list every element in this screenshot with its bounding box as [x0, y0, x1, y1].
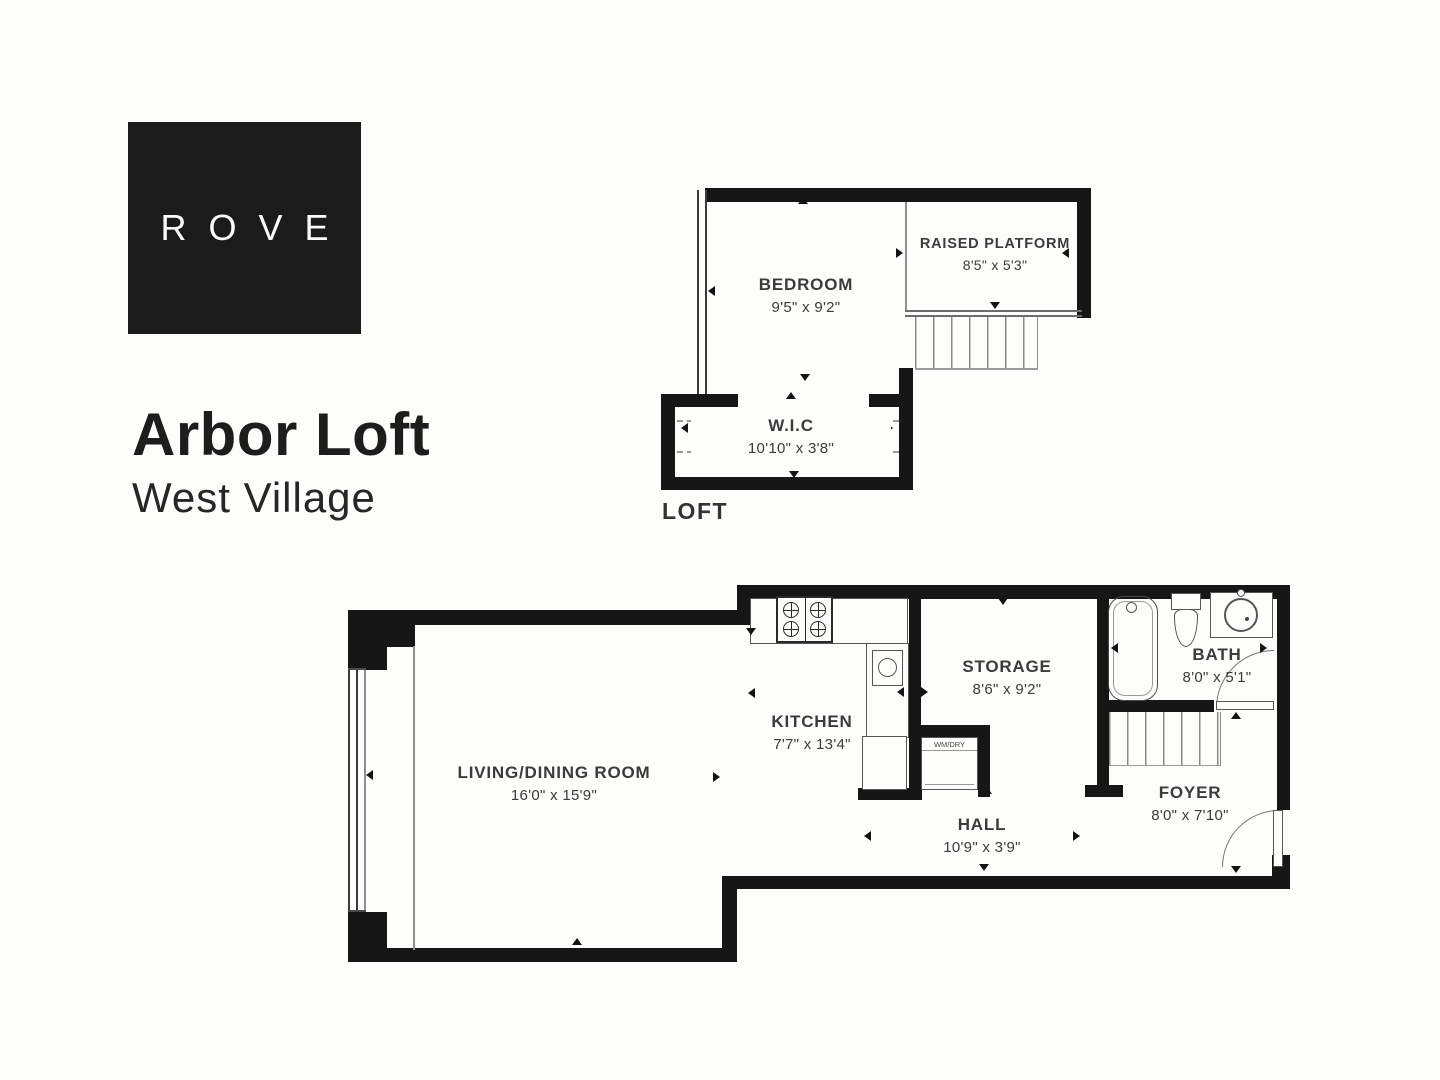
- room-dims: 8'0" x 5'1": [1127, 669, 1307, 686]
- room-label-living-dining: LIVING/DINING ROOM 16'0" x 15'9": [454, 763, 654, 804]
- rove-logo: ROVE: [128, 122, 361, 334]
- room-label-bath: BATH 8'0" x 5'1": [1127, 645, 1307, 686]
- stove: [776, 596, 833, 643]
- wall-segment: [899, 368, 913, 490]
- room-name: W.I.C: [691, 416, 891, 436]
- room-dims: 9'5" x 9'2": [716, 299, 896, 316]
- stove-burner: [810, 602, 826, 618]
- washer-door-line: [925, 784, 974, 785]
- wall-segment: [661, 477, 913, 490]
- direction-marker: [366, 770, 373, 780]
- room-dims: 10'9" x 3'9": [892, 839, 1072, 856]
- direction-marker: [1073, 831, 1080, 841]
- bathtub-faucet: [1126, 602, 1137, 613]
- room-dims: 8'5" x 5'3": [903, 257, 1087, 273]
- direction-marker: [897, 687, 904, 697]
- floorplan-page: ROVE Arbor Loft West Village: [0, 0, 1440, 1080]
- wall-segment: [1097, 700, 1214, 712]
- direction-marker: [798, 197, 808, 204]
- room-name: LIVING/DINING ROOM: [454, 763, 654, 783]
- direction-marker: [572, 938, 582, 945]
- bath-sink-drain: [1245, 617, 1249, 621]
- direction-marker: [864, 831, 871, 841]
- rove-logo-text: ROVE: [138, 207, 350, 249]
- direction-marker: [800, 374, 810, 381]
- wall-segment: [705, 188, 1090, 202]
- window: [364, 668, 366, 912]
- platform-edge: [905, 310, 1082, 317]
- room-name: BATH: [1127, 645, 1307, 665]
- stove-divider: [805, 598, 806, 641]
- kitchen-sink-basin: [878, 658, 897, 677]
- direction-marker: [990, 302, 1000, 309]
- wall-corner: [348, 623, 387, 670]
- toilet-tank: [1171, 593, 1201, 610]
- room-dims: 8'0" x 7'10": [1100, 807, 1280, 824]
- direction-marker: [982, 787, 992, 794]
- room-label-foyer: FOYER 8'0" x 7'10": [1100, 783, 1280, 824]
- direction-marker: [748, 688, 755, 698]
- window-cap: [348, 668, 366, 670]
- stove-burner: [810, 621, 826, 637]
- wall-segment: [722, 876, 1290, 889]
- window: [697, 190, 707, 395]
- room-dims: 16'0" x 15'9": [454, 787, 654, 804]
- room-label-raised-platform: RAISED PLATFORM 8'5" x 5'3": [903, 236, 1087, 273]
- stove-burner: [783, 602, 799, 618]
- listing-subtitle: West Village: [132, 474, 376, 522]
- direction-marker: [1231, 866, 1241, 873]
- direction-marker: [1111, 643, 1118, 653]
- wall-corner: [387, 623, 415, 647]
- wall-segment: [869, 394, 913, 407]
- room-name: STORAGE: [917, 657, 1097, 677]
- direction-marker: [979, 864, 989, 871]
- direction-marker: [708, 286, 715, 296]
- wall-face-line: [413, 646, 415, 950]
- bath-sink-tap: [1237, 589, 1245, 597]
- toilet-bowl: [1174, 609, 1198, 647]
- bath-sink-basin: [1224, 598, 1258, 632]
- listing-title: Arbor Loft: [132, 400, 430, 469]
- stairs: [1109, 712, 1221, 766]
- room-label-kitchen: KITCHEN 7'7" x 13'4": [722, 712, 902, 753]
- wall-corner: [348, 912, 387, 952]
- room-dims: 7'7" x 13'4": [722, 736, 902, 753]
- direction-marker: [998, 598, 1008, 605]
- room-label-bedroom: BEDROOM 9'5" x 9'2": [716, 275, 896, 316]
- room-name: BEDROOM: [716, 275, 896, 295]
- room-name: RAISED PLATFORM: [903, 236, 1087, 253]
- room-name: KITCHEN: [722, 712, 902, 732]
- wall-segment: [348, 948, 737, 962]
- direction-marker: [1231, 712, 1241, 719]
- direction-marker: [789, 471, 799, 478]
- washer-dryer: WM/DRY: [921, 737, 978, 790]
- room-dims: 8'6" x 9'2": [917, 681, 1097, 698]
- window: [348, 668, 350, 912]
- room-label-storage: STORAGE 8'6" x 9'2": [917, 657, 1097, 698]
- wall-segment: [1277, 585, 1290, 810]
- stove-burner: [783, 621, 799, 637]
- room-name: HALL: [892, 815, 1072, 835]
- direction-marker: [713, 772, 720, 782]
- room-name: FOYER: [1100, 783, 1280, 803]
- wall-segment: [661, 394, 675, 490]
- stairs: [915, 317, 1038, 370]
- washer-dryer-label: WM/DRY: [922, 740, 977, 751]
- room-label-wic: W.I.C 10'10" x 3'8": [691, 416, 891, 457]
- room-label-hall: HALL 10'9" x 3'9": [892, 815, 1072, 856]
- loft-plan-label: LOFT: [662, 498, 728, 525]
- direction-marker: [681, 423, 688, 433]
- room-dims: 10'10" x 3'8": [691, 440, 891, 457]
- door-leaf: [1216, 701, 1274, 710]
- window-cap: [348, 910, 366, 912]
- direction-marker: [896, 248, 903, 258]
- direction-marker: [786, 392, 796, 399]
- direction-marker: [746, 628, 756, 635]
- window: [356, 668, 358, 912]
